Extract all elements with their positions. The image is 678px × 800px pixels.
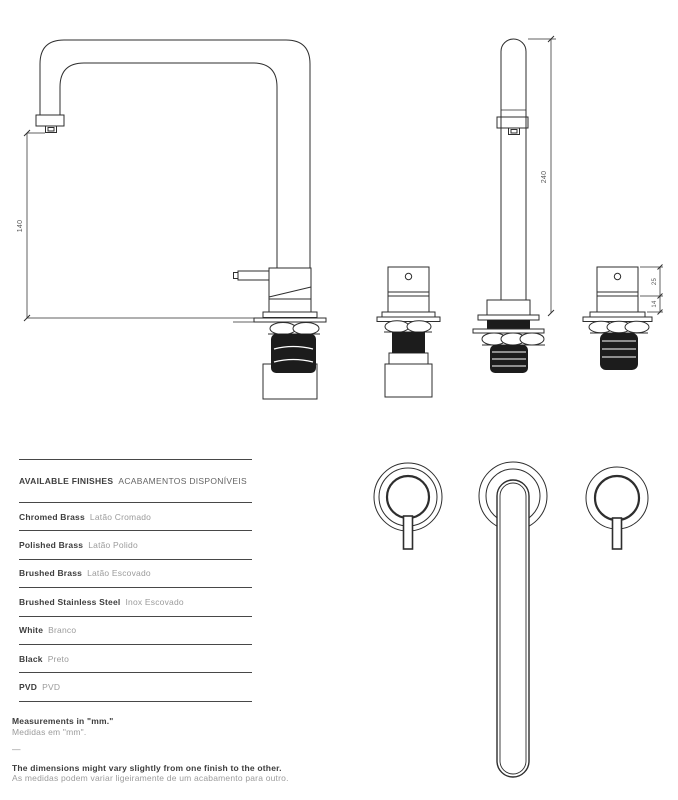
finish-label-en: PVD [19,682,37,692]
finish-label-pt: Latão Escovado [87,568,151,578]
finish-label-en: Brushed Stainless Steel [19,597,120,607]
footnotes: Measurements in "mm." Medidas em "mm". —… [12,716,372,784]
valve-indicator-dot [405,273,411,279]
tolerance-note-pt: As medidas podem variar ligeiramente de … [12,773,372,784]
finish-row-black: Black Preto [19,644,252,672]
finishes-header: AVAILABLE FINISHES ACABAMENTOS DISPONÍVE… [19,459,252,502]
valve-front-view-right [583,267,652,370]
spec-sheet-page: 140 [0,0,678,800]
finish-label-pt: Preto [48,654,69,664]
finish-row-white: White Branco [19,616,252,644]
measurements-note-pt: Medidas em "mm". [12,727,372,738]
finish-label-pt: Latão Polido [88,540,138,550]
dim-240-label: 240 [541,171,548,184]
finish-row-brushed-stainless-steel: Brushed Stainless Steel Inox Escovado [19,587,252,615]
finish-row-pvd: PVD PVD [19,672,252,700]
dim-25-label: 25 [652,278,658,286]
finish-label-en: Black [19,654,43,664]
handle-stem [404,516,413,549]
spout-outlet-front [497,117,528,128]
spout-front-view [473,39,545,373]
finish-label-pt: Inox Escovado [125,597,183,607]
finishes-title-en: AVAILABLE FINISHES [19,476,113,486]
handle-top-view-left [374,463,442,549]
dimension-140: 140 [17,130,45,321]
mixer-body [269,268,311,312]
spout-top-view [479,462,547,777]
finish-row-chromed-brass: Chromed Brass Latão Cromado [19,502,252,530]
handle-stem [613,518,622,549]
notes-separator: — [12,744,372,755]
finish-row-brushed-brass: Brushed Brass Latão Escovado [19,559,252,587]
finishes-table: AVAILABLE FINISHES ACABAMENTOS DISPONÍVE… [19,459,252,702]
handle-top-view-right [586,467,648,549]
finish-label-pt: Latão Cromado [90,512,151,522]
finish-row-polished-brass: Polished Brass Latão Polido [19,530,252,558]
measurements-note-en: Measurements in "mm." [12,716,372,727]
lever-handle [238,271,269,280]
finish-label-en: Chromed Brass [19,512,85,522]
spout-tube [497,480,529,777]
dimension-240: 240 [528,36,556,316]
valve-indicator-dot [614,273,620,279]
finish-label-en: Brushed Brass [19,568,82,578]
dim-14-label: 14 [652,300,658,308]
finish-label-pt: PVD [42,682,60,692]
valve-front-view-left [377,267,440,397]
finish-label-pt: Branco [48,625,76,635]
dim-140-label: 140 [17,220,24,233]
spout-outlet [36,115,64,126]
finishes-title-pt: ACABAMENTOS DISPONÍVEIS [118,476,247,486]
faucet-side-view [27,40,326,399]
dimension-25-14: 25 14 [640,265,663,315]
tolerance-note-en: The dimensions might vary slightly from … [12,763,372,774]
finish-label-en: White [19,625,43,635]
finish-label-en: Polished Brass [19,540,83,550]
